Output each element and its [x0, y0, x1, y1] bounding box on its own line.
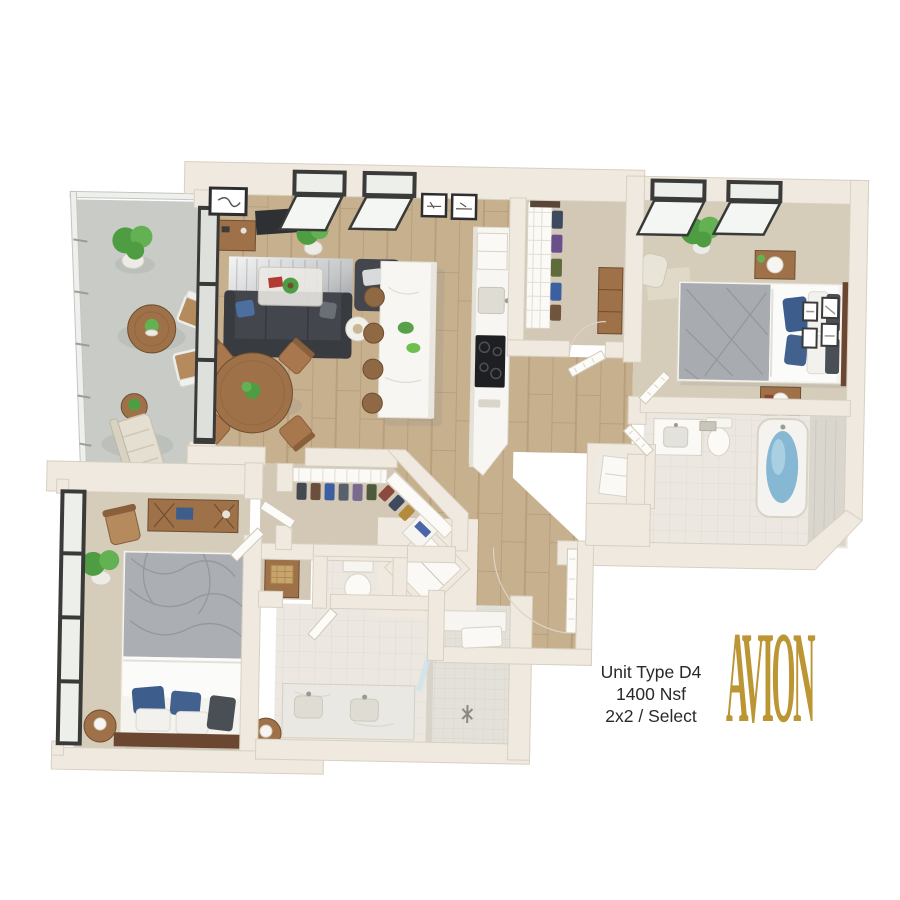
entry-bench: [461, 626, 502, 648]
unit-type: Unit Type D4: [601, 662, 702, 682]
coffee-table: [258, 267, 323, 306]
headboard: [114, 732, 254, 749]
wire-shelving: [526, 202, 552, 328]
tv-console: [215, 220, 256, 251]
unit-label: Unit Type D4 1400 Nsf 2x2 / Select: [601, 662, 702, 726]
dark-pillow: [206, 695, 236, 732]
white-pillow: [136, 709, 170, 732]
floor-plan-page: Unit Type D4 1400 Nsf 2x2 / Select AVION: [0, 0, 900, 900]
floor-plan-image: Unit Type D4 1400 Nsf 2x2 / Select AVION: [0, 0, 900, 900]
wall-art-frame: [210, 188, 246, 215]
wire-shelving: [293, 468, 387, 484]
ceiling-vent: [700, 421, 716, 430]
laptop: [176, 507, 193, 519]
blue-pillow: [235, 299, 255, 318]
avion-logo: AVION: [726, 604, 815, 750]
kitchen-counter: [469, 227, 512, 476]
white-pillow: [176, 711, 208, 734]
balcony-bistro-table: [127, 304, 176, 353]
double-vanity: [282, 683, 415, 740]
unit-area: 1400 Nsf: [616, 684, 686, 704]
bathtub: [756, 419, 808, 518]
counter-item: [478, 399, 500, 407]
woven-basket: [271, 565, 293, 583]
unit-config: 2x2 / Select: [605, 706, 697, 726]
round-nightstand: [84, 710, 117, 743]
desk: [148, 499, 239, 533]
kitchen-island: [378, 261, 445, 426]
cooktop: [475, 335, 506, 388]
dresser: [598, 267, 623, 333]
kitchen-sink: [478, 287, 504, 313]
bedroom-2-window-wall: [56, 489, 87, 745]
sliding-glass-door: [193, 206, 220, 444]
sink: [294, 696, 322, 719]
bed: [114, 550, 258, 753]
sink: [350, 699, 378, 722]
duvet: [123, 552, 249, 658]
nightstand: [755, 250, 796, 279]
